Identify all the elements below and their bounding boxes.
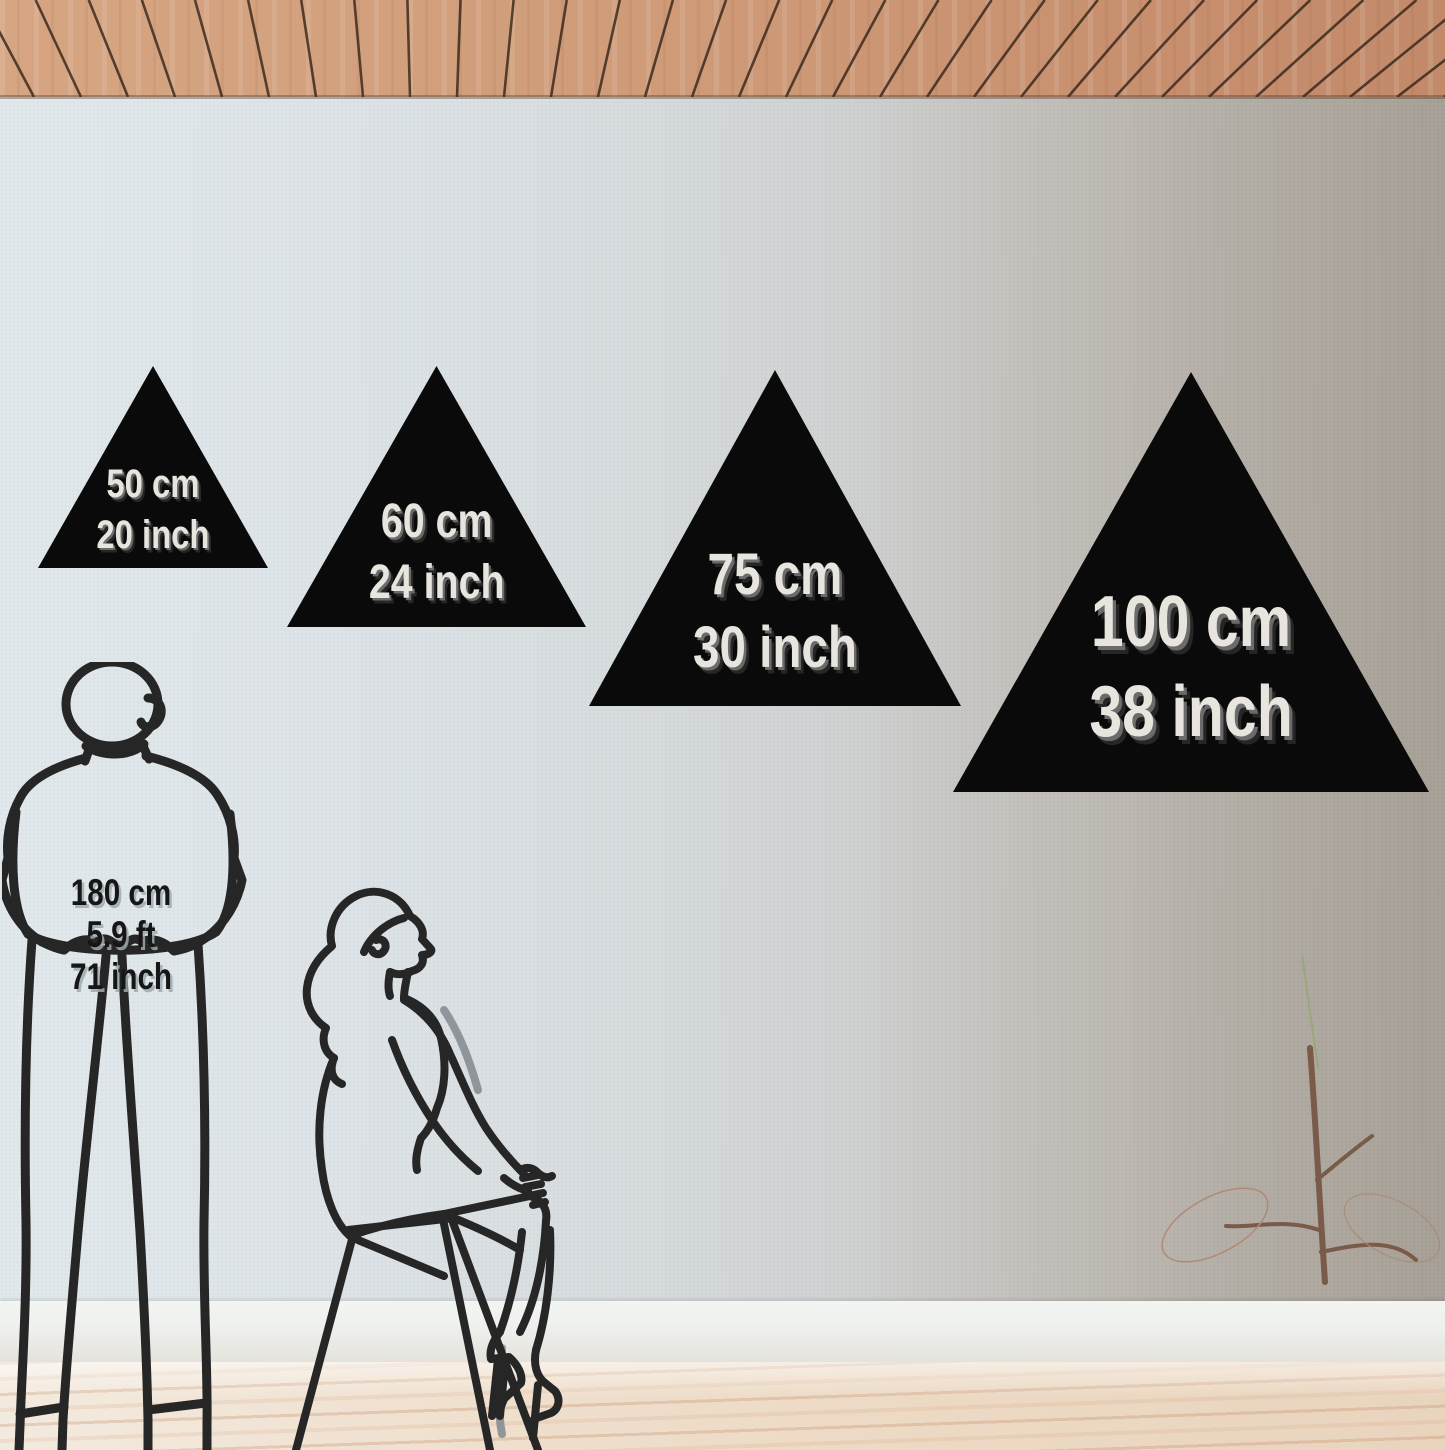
height-ft: 5.9 ft: [53, 914, 189, 956]
size-label-60cm: 60 cm 24 inch: [369, 492, 505, 627]
size-cm: 100 cm: [1089, 577, 1292, 668]
plant-leaves: [1121, 945, 1445, 1335]
pot-floor-shadow: [1233, 1411, 1417, 1437]
plant-stems: [1226, 1048, 1416, 1282]
man-outline: [2, 662, 242, 1450]
size-label-100cm: 100 cm 38 inch: [1089, 577, 1292, 792]
size-cm: 75 cm: [693, 538, 857, 611]
standing-man-line-art: [2, 662, 262, 1450]
size-inch: 24 inch: [369, 553, 505, 613]
plant-leaf-front: [1286, 1262, 1354, 1382]
size-inch: 20 inch: [96, 510, 209, 560]
size-cm: 60 cm: [369, 492, 505, 552]
height-cm: 180 cm: [53, 872, 189, 914]
seated-woman-line-art: [292, 878, 622, 1450]
woman-outline: [296, 892, 558, 1450]
size-inch: 38 inch: [1089, 667, 1292, 758]
plant-pot: [1236, 1272, 1413, 1414]
room-scene: 50 cm 20 inch 60 cm 24 inch 75 cm 30 inc…: [0, 0, 1445, 1450]
size-cm: 50 cm: [96, 459, 209, 509]
ceiling-slat-lines: [0, 0, 1445, 97]
wood-slat-ceiling: [0, 0, 1445, 97]
ceiling-shadow-edge: [0, 95, 1445, 99]
height-label: 180 cm 5.9 ft 71 inch: [53, 872, 189, 999]
size-inch: 30 inch: [693, 611, 857, 684]
size-label-75cm: 75 cm 30 inch: [693, 538, 857, 706]
size-label-50cm: 50 cm 20 inch: [96, 459, 209, 568]
potted-rubber-plant: [1120, 930, 1445, 1450]
height-inch: 71 inch: [53, 956, 189, 998]
